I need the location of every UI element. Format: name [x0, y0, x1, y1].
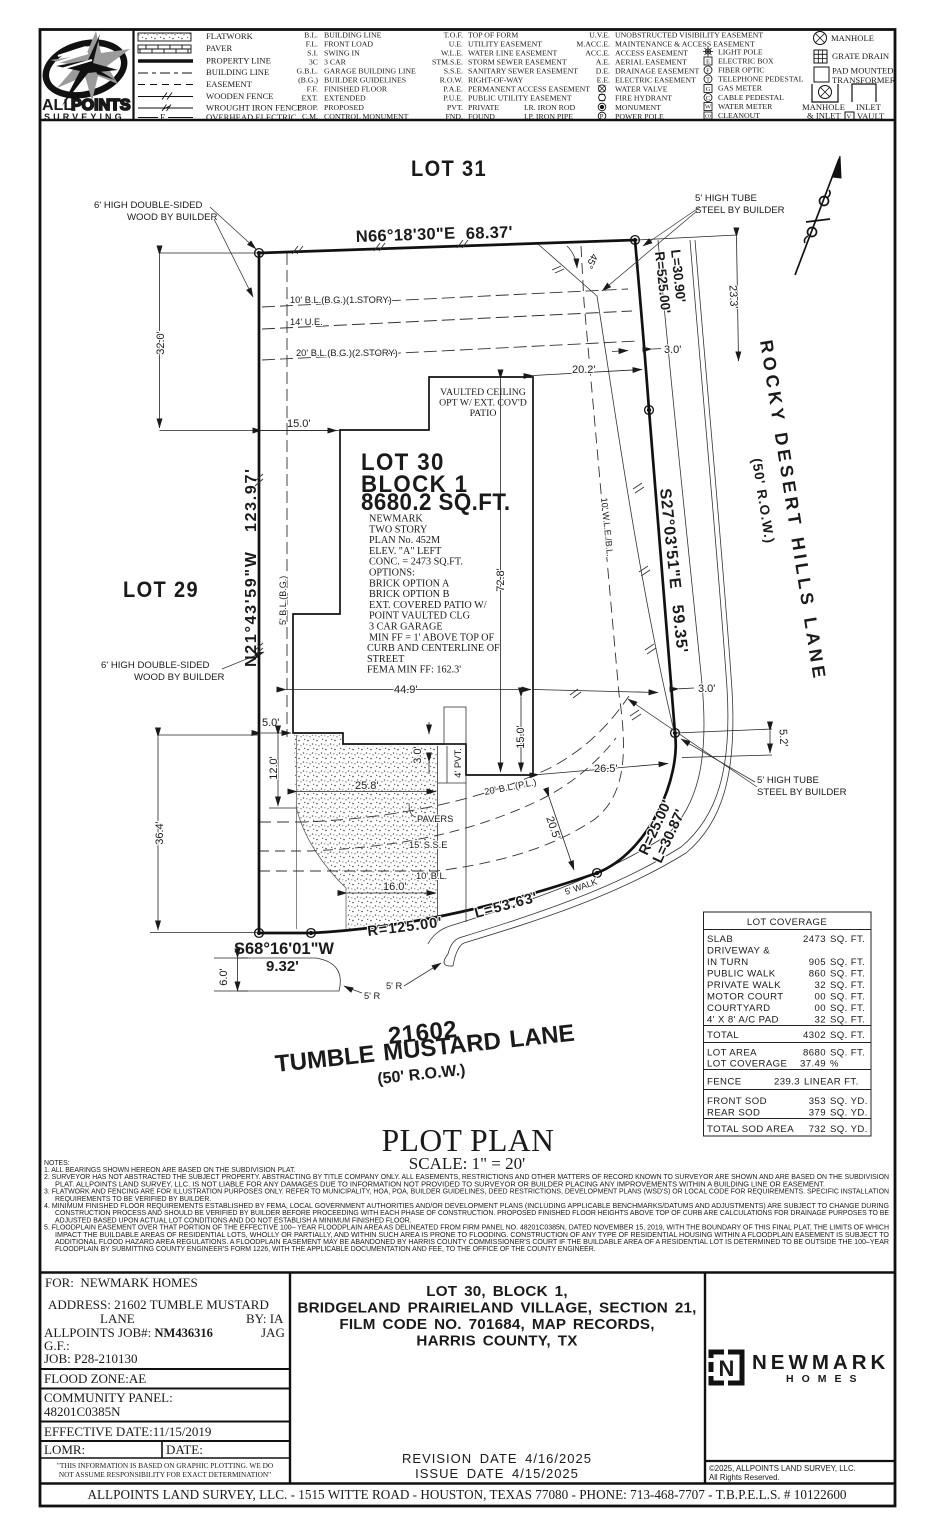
- svg-text:CONTROL MONUMENT: CONTROL MONUMENT: [324, 112, 409, 121]
- svg-text:WATER VALVE: WATER VALVE: [615, 85, 668, 94]
- svg-text:F.F.: F.F.: [307, 85, 318, 94]
- svg-text:PROPOSED: PROPOSED: [324, 103, 364, 112]
- svg-text:TRANSFORMER: TRANSFORMER: [832, 75, 896, 85]
- svg-text:FIRE HYDRANT: FIRE HYDRANT: [615, 94, 672, 103]
- svg-text:PATIO: PATIO: [470, 408, 497, 419]
- svg-text:STEEL BY BUILDER: STEEL BY BUILDER: [695, 205, 785, 216]
- svg-text:HARRIS COUNTY, TX: HARRIS COUNTY, TX: [416, 1333, 577, 1350]
- svg-text:T.O.F.: T.O.F.: [444, 31, 463, 40]
- svg-text:VAULTED CEILING: VAULTED CEILING: [440, 387, 526, 398]
- svg-text:ELECTRIC BOX: ELECTRIC BOX: [718, 57, 774, 66]
- svg-text:LOT 29: LOT 29: [123, 578, 199, 602]
- svg-text:POINT VAULTED CLG: POINT VAULTED CLG: [369, 611, 471, 622]
- svg-text:STEEL BY BUILDER: STEEL BY BUILDER: [757, 787, 847, 798]
- svg-text:3 CAR GARAGE: 3 CAR GARAGE: [369, 622, 443, 633]
- svg-text:72.8': 72.8': [495, 568, 507, 592]
- svg-text:LOT COVERAGE: LOT COVERAGE: [707, 1059, 787, 1070]
- svg-text:S.S.E.: S.S.E.: [444, 67, 463, 76]
- svg-text:20.5': 20.5': [543, 815, 562, 841]
- svg-text:R.O.W.: R.O.W.: [440, 76, 463, 85]
- svg-text:SWING IN: SWING IN: [324, 49, 360, 58]
- svg-text:G.B.L.: G.B.L.: [297, 67, 318, 76]
- svg-text:PERMANENT ACCESS EASEMENT: PERMANENT ACCESS EASEMENT: [468, 85, 590, 94]
- svg-text:BUILDING LINE: BUILDING LINE: [324, 31, 382, 40]
- svg-text:5' HIGH TUBE: 5' HIGH TUBE: [695, 193, 757, 204]
- svg-text:LIGHT POLE: LIGHT POLE: [718, 48, 763, 57]
- svg-text:D.E.: D.E.: [596, 67, 610, 76]
- svg-text:PROP.: PROP.: [297, 103, 318, 112]
- svg-text:EFFECTIVE DATE:11/15/2019: EFFECTIVE DATE:11/15/2019: [44, 1424, 211, 1439]
- svg-text:4' X 8' A/C PAD: 4' X 8' A/C PAD: [707, 1015, 779, 1026]
- svg-text:FLOOD ZONE:AE: FLOOD ZONE:AE: [44, 1371, 146, 1386]
- svg-text:6' HIGH DOUBLE-SIDED: 6' HIGH DOUBLE-SIDED: [94, 200, 203, 211]
- svg-text:A.E.: A.E.: [596, 58, 610, 67]
- svg-text:REAR SOD: REAR SOD: [707, 1108, 760, 1119]
- svg-text:PAVER: PAVER: [206, 43, 233, 53]
- svg-text:CABLE PEDESTAL: CABLE PEDESTAL: [718, 93, 784, 102]
- svg-text:SQ. FT.: SQ. FT.: [830, 957, 865, 968]
- svg-text:UTILITY EASEMENT: UTILITY EASEMENT: [468, 40, 542, 49]
- svg-text:L=53.63': L=53.63': [473, 890, 540, 922]
- svg-text:2. SURVEYOR HAS NOT ABSTRACTE: 2. SURVEYOR HAS NOT ABSTRACTED THE SUBJE…: [44, 1174, 889, 1181]
- svg-text:NEWMARK: NEWMARK: [369, 514, 423, 525]
- svg-text:20.2': 20.2': [572, 364, 596, 376]
- svg-text:45°: 45°: [583, 252, 599, 270]
- svg-text:STORM SEWER EASEMENT: STORM SEWER EASEMENT: [468, 58, 567, 67]
- svg-text:SQ. YD.: SQ. YD.: [830, 1096, 868, 1107]
- svg-text:EASEMENT: EASEMENT: [206, 79, 253, 89]
- svg-text:SQ. FT.: SQ. FT.: [830, 1030, 865, 1041]
- svg-text:EXT.: EXT.: [301, 94, 318, 103]
- svg-text:860: 860: [809, 969, 826, 980]
- svg-text:239.3: 239.3: [774, 1077, 800, 1088]
- svg-text:732: 732: [809, 1124, 826, 1135]
- svg-text:EXTENDED: EXTENDED: [324, 94, 366, 103]
- svg-text:JAG: JAG: [261, 1325, 285, 1340]
- svg-text:IMPACT THE BUILDABLE AREAS OF: IMPACT THE BUILDABLE AREAS OF RESIDENTIA…: [55, 1232, 890, 1239]
- svg-text:E.E.: E.E.: [597, 76, 610, 85]
- svg-text:FRONT LOAD: FRONT LOAD: [324, 40, 373, 49]
- svg-text:GARAGE BUILDING LINE: GARAGE BUILDING LINE: [324, 67, 416, 76]
- svg-text:BRICK OPTION B: BRICK OPTION B: [369, 589, 450, 600]
- svg-text:E: E: [160, 113, 166, 123]
- svg-text:HOMES: HOMES: [786, 1373, 865, 1385]
- svg-text:N21°43'59"W 123.97': N21°43'59"W 123.97': [243, 467, 260, 667]
- svg-text:ALLPOINTS LAND SURVEY, LLC. -: ALLPOINTS LAND SURVEY, LLC. - 1515 WITTE…: [87, 1487, 846, 1502]
- svg-text:PVT.: PVT.: [447, 103, 463, 112]
- svg-text:CONSTRUCTION PROCESS AND SHOUL: CONSTRUCTION PROCESS AND SHOULD BE VERIF…: [55, 1210, 889, 1217]
- svg-text:BUILDING LINE: BUILDING LINE: [206, 67, 269, 77]
- svg-text:8680.2 SQ.FT.: 8680.2 SQ.FT.: [361, 488, 511, 515]
- svg-text:GAS METER: GAS METER: [718, 84, 763, 93]
- svg-text:15.0': 15.0': [515, 725, 527, 749]
- svg-text:MANHOLE: MANHOLE: [831, 33, 874, 43]
- svg-text:P: P: [600, 113, 604, 121]
- svg-text:LANE: LANE: [100, 1311, 135, 1326]
- svg-text:All Rights Reserved.: All Rights Reserved.: [709, 1473, 780, 1482]
- svg-text:PRIVATE WALK: PRIVATE WALK: [707, 980, 781, 991]
- svg-text:COMMUNITY PANEL:: COMMUNITY PANEL:: [44, 1390, 173, 1405]
- svg-text:3. FLATWORK AND FENCING ARE F: 3. FLATWORK AND FENCING ARE FOR ILLUSTRA…: [44, 1189, 889, 1196]
- svg-text:FOUND: FOUND: [468, 112, 495, 121]
- svg-text:T: T: [706, 77, 710, 84]
- svg-text:14' U.E.: 14' U.E.: [290, 317, 323, 327]
- svg-text:10' B.L.: 10' B.L.: [416, 871, 447, 881]
- svg-text:5' R: 5' R: [386, 981, 403, 991]
- svg-text:WOODEN FENCE: WOODEN FENCE: [206, 91, 274, 101]
- svg-text:REVISION DATE 4/16/2025: REVISION DATE 4/16/2025: [402, 1451, 592, 1466]
- svg-text:I.P. IRON PIPE: I.P. IRON PIPE: [524, 112, 573, 121]
- svg-text:3.0': 3.0': [412, 746, 424, 763]
- svg-text:AERIAL EASEMENT: AERIAL EASEMENT: [615, 58, 687, 67]
- svg-text:5. FLOODPLAIN EASEMENT OVER T: 5. FLOODPLAIN EASEMENT OVER THAT PORTION…: [44, 1225, 889, 1232]
- svg-text:TOTAL: TOTAL: [707, 1030, 739, 1041]
- svg-text:SQ. FT.: SQ. FT.: [830, 1048, 865, 1059]
- svg-text:ELEV. "A" LEFT: ELEV. "A" LEFT: [369, 546, 442, 557]
- svg-text:353: 353: [809, 1096, 826, 1107]
- svg-text:BRICK OPTION A: BRICK OPTION A: [369, 578, 450, 589]
- svg-text:COURTYARD: COURTYARD: [707, 1003, 770, 1014]
- svg-text:10' W.L.E./B.L.: 10' W.L.E./B.L.: [599, 497, 615, 557]
- svg-text:37.49: 37.49: [800, 1059, 826, 1070]
- svg-text:SQ. YD.: SQ. YD.: [830, 1124, 868, 1135]
- svg-text:2473: 2473: [803, 934, 826, 945]
- svg-text:15' S.S.E: 15' S.S.E: [409, 840, 447, 850]
- svg-text:CLEANOUT: CLEANOUT: [718, 111, 760, 120]
- svg-text:NOT ASSUME RESPONSIBILITY FOR: NOT ASSUME RESPONSIBILITY FOR EXACT DETE…: [59, 1470, 271, 1479]
- svg-text:LOMR:: LOMR:: [44, 1442, 85, 1457]
- svg-text:E: E: [706, 58, 710, 65]
- svg-text:FRONT SOD: FRONT SOD: [707, 1096, 767, 1107]
- svg-text:FIBER OPTIC: FIBER OPTIC: [718, 66, 765, 75]
- svg-text:G: G: [706, 86, 711, 93]
- svg-text:PUBLIC WALK: PUBLIC WALK: [707, 969, 776, 980]
- svg-text:25.8': 25.8': [355, 780, 379, 792]
- svg-text:5' B.L.(B.G.): 5' B.L.(B.G.): [278, 576, 288, 625]
- svg-text:12.0': 12.0': [268, 756, 280, 780]
- svg-text:I.R. IRON ROD: I.R. IRON ROD: [524, 103, 575, 112]
- svg-text:TELEPHONE PEDESTAL: TELEPHONE PEDESTAL: [718, 75, 804, 84]
- svg-text:PROPERTY LINE: PROPERTY LINE: [206, 56, 271, 66]
- svg-text:N66°18'30"E: N66°18'30"E: [356, 225, 456, 246]
- svg-text:C: C: [706, 95, 711, 102]
- svg-text:32: 32: [815, 1015, 826, 1026]
- svg-text:ADDITIONAL FLOOD HAZARD AREA R: ADDITIONAL FLOOD HAZARD AREA REGULATIONS…: [55, 1239, 889, 1246]
- svg-text:V: V: [847, 114, 852, 121]
- svg-text:MONUMENT: MONUMENT: [615, 103, 661, 112]
- svg-text:5.0': 5.0': [262, 717, 279, 729]
- svg-text:WATER METER: WATER METER: [718, 102, 773, 111]
- svg-text:FND.: FND.: [445, 112, 463, 121]
- svg-text:TOTAL SOD AREA: TOTAL SOD AREA: [707, 1124, 794, 1135]
- svg-text:(50' R.O.W.): (50' R.O.W.): [749, 457, 777, 545]
- svg-text:DRAINAGE EASEMENT: DRAINAGE EASEMENT: [615, 67, 699, 76]
- svg-text:WOOD BY BUILDER: WOOD BY BUILDER: [134, 672, 225, 683]
- svg-text:P.U.E.: P.U.E.: [443, 94, 463, 103]
- svg-text:STM.S.E.: STM.S.E.: [432, 58, 463, 67]
- svg-text:20' B.L.(P.L.): 20' B.L.(P.L.): [483, 777, 537, 797]
- svg-text:20' B.L.(B.G.)(2 STORY): 20' B.L.(B.G.)(2 STORY): [296, 348, 398, 358]
- svg-text:PLAT. ALLPOINTS LAND SURVEY, L: PLAT. ALLPOINTS LAND SURVEY, LLC. IS NOT…: [55, 1181, 825, 1188]
- svg-text:SQ. FT.: SQ. FT.: [830, 980, 865, 991]
- svg-text:BRIDGELAND PRAIRIELAND VILLAGE: BRIDGELAND PRAIRIELAND VILLAGE, SECTION …: [297, 1300, 696, 1317]
- svg-text:"THIS INFORMATION IS BASED ON: "THIS INFORMATION IS BASED ON GRAPHIC PL…: [57, 1461, 273, 1470]
- svg-text:U.E.: U.E.: [449, 40, 463, 49]
- svg-text:FILM CODE NO. 701684, MAP RECO: FILM CODE NO. 701684, MAP RECORDS,: [339, 1316, 654, 1333]
- svg-text:TOP OF FORM: TOP OF FORM: [468, 31, 518, 40]
- svg-text:44.9': 44.9': [394, 684, 418, 696]
- svg-text:OPTIONS:: OPTIONS:: [369, 568, 415, 579]
- svg-text:5' R: 5' R: [364, 991, 381, 1001]
- svg-text:(B.G.): (B.G.): [298, 76, 318, 85]
- svg-text:4. MINIMUM FINISHED FLOOR REQ: 4. MINIMUM FINISHED FLOOR REQUIREMENTS E…: [44, 1203, 889, 1210]
- svg-text:©2025, ALLPOINTS LAND SURVE: ©2025, ALLPOINTS LAND SURVEY, LLC.: [709, 1464, 856, 1473]
- svg-text:DATE:: DATE:: [166, 1442, 203, 1457]
- svg-text:SQ. FT.: SQ. FT.: [830, 1015, 865, 1026]
- svg-text:8680: 8680: [803, 1048, 826, 1059]
- svg-text:10' B.L.(B.G.)(1 STORY): 10' B.L.(B.G.)(1 STORY): [290, 295, 392, 305]
- svg-text:SQ. FT.: SQ. FT.: [830, 992, 865, 1003]
- svg-text:SQ. FT.: SQ. FT.: [830, 934, 865, 945]
- svg-text:WOOD BY BUILDER: WOOD BY BUILDER: [127, 212, 218, 223]
- svg-text:IN TURN: IN TURN: [707, 957, 749, 968]
- svg-text:32.0': 32.0': [155, 331, 167, 355]
- svg-text:NEWMARK: NEWMARK: [752, 1351, 889, 1374]
- svg-text:FENCE: FENCE: [707, 1077, 742, 1088]
- svg-text:F.L.: F.L.: [306, 40, 318, 49]
- svg-text:FEMA MIN FF: 162.3': FEMA MIN FF: 162.3': [367, 665, 461, 676]
- svg-text:REQUIREMENTS TO BE VERIFIED BY: REQUIREMENTS TO BE VERIFIED BY BUILDER.: [55, 1196, 211, 1203]
- svg-text:FOR: NEWMARK HOMES: FOR: NEWMARK HOMES: [45, 1275, 198, 1290]
- svg-text:5.2': 5.2': [777, 729, 790, 747]
- svg-text:6' HIGH DOUBLE-SIDED: 6' HIGH DOUBLE-SIDED: [101, 660, 210, 671]
- svg-text:MIN FF = 1' ABOVE TOP OF: MIN FF = 1' ABOVE TOP OF: [369, 632, 494, 643]
- svg-text:PRIVATE: PRIVATE: [468, 103, 499, 112]
- svg-text:MOTOR COURT: MOTOR COURT: [707, 992, 784, 1003]
- svg-text:SCALE: 1" = 20': SCALE: 1" = 20': [409, 1154, 525, 1173]
- svg-text:PLAN No. 452M: PLAN No. 452M: [369, 535, 440, 546]
- svg-text:SQ. FT.: SQ. FT.: [830, 969, 865, 980]
- svg-text:CURB AND CENTERLINE OF: CURB AND CENTERLINE OF: [367, 643, 500, 654]
- svg-text:36.4': 36.4': [154, 821, 166, 845]
- svg-text:co: co: [705, 113, 712, 120]
- svg-text:ISSUE DATE 4/15/2025: ISSUE DATE 4/15/2025: [415, 1466, 579, 1481]
- svg-text:LOT COVERAGE: LOT COVERAGE: [747, 917, 827, 928]
- svg-text:PAVERS: PAVERS: [417, 814, 453, 824]
- svg-text:PUBLIC UTILITY EASEMENT: PUBLIC UTILITY EASEMENT: [468, 94, 572, 103]
- svg-text:RIGHT-OF-WAY: RIGHT-OF-WAY: [468, 76, 524, 85]
- svg-text:3.0': 3.0': [698, 683, 715, 695]
- svg-text:4' PVT.: 4' PVT.: [453, 748, 464, 778]
- svg-text:C.M.: C.M.: [302, 112, 318, 121]
- svg-text:16.0': 16.0': [383, 881, 407, 893]
- svg-text:N: N: [719, 1356, 735, 1381]
- svg-text:JOB: P28-210130: JOB: P28-210130: [44, 1351, 138, 1366]
- svg-text:3 CAR: 3 CAR: [324, 58, 347, 67]
- svg-text:FINISHED FLOOR: FINISHED FLOOR: [324, 85, 388, 94]
- svg-text:32: 32: [815, 980, 826, 991]
- svg-text:& INLET: & INLET: [807, 111, 841, 121]
- svg-text:CONC. = 2473 SQ.FT.: CONC. = 2473 SQ.FT.: [369, 557, 463, 568]
- svg-text:15.0': 15.0': [287, 418, 311, 430]
- svg-text:SQ. YD.: SQ. YD.: [830, 1108, 868, 1119]
- svg-text:U.V.E.: U.V.E.: [589, 31, 610, 40]
- svg-text:FLOODPLAIN BY SUBMITTING COUNT: FLOODPLAIN BY SUBMITTING COUNTY ENGINEER…: [55, 1246, 596, 1253]
- svg-text:SANITARY SEWER EASEMENT: SANITARY SEWER EASEMENT: [468, 67, 578, 76]
- svg-text:DRIVEWAY &: DRIVEWAY &: [707, 946, 770, 957]
- svg-text:5' HIGH TUBE: 5' HIGH TUBE: [757, 775, 819, 786]
- svg-text:00: 00: [815, 1003, 826, 1014]
- svg-text:FLATWORK: FLATWORK: [206, 31, 254, 41]
- svg-text:PAD MOUNTED: PAD MOUNTED: [832, 66, 894, 76]
- svg-text:BY: IA: BY: IA: [246, 1311, 284, 1326]
- svg-text:3C: 3C: [309, 58, 318, 67]
- svg-text:NOTES:: NOTES:: [44, 1160, 70, 1167]
- svg-text:26.5': 26.5': [594, 763, 618, 775]
- svg-text:VAULT: VAULT: [857, 111, 885, 121]
- svg-text:PLOT PLAN: PLOT PLAN: [382, 1123, 555, 1158]
- svg-text:OVERHEAD ELECTRIC: OVERHEAD ELECTRIC: [206, 112, 297, 122]
- svg-text:STREET: STREET: [367, 654, 405, 665]
- svg-text:LOT 31: LOT 31: [411, 157, 487, 181]
- svg-text:1. ALL BEARINGS SHOWN HEREON: 1. ALL BEARINGS SHOWN HEREON ARE BASED O…: [44, 1167, 296, 1174]
- svg-text:SQ. FT.: SQ. FT.: [830, 1003, 865, 1014]
- svg-text:W: W: [705, 103, 712, 110]
- svg-text:ACCESS EASEMENT: ACCESS EASEMENT: [615, 49, 688, 58]
- svg-text:B.L.: B.L.: [304, 31, 318, 40]
- svg-text:68.37': 68.37': [466, 223, 514, 243]
- svg-text:POWER POLE: POWER POLE: [615, 112, 664, 121]
- svg-text:9.32': 9.32': [266, 958, 299, 975]
- svg-text:LOT 30, BLOCK 1,: LOT 30, BLOCK 1,: [426, 1283, 568, 1300]
- svg-text:%: %: [830, 1059, 839, 1070]
- svg-text:ADDRESS: 21602 TUMBLE MUSTARD: ADDRESS: 21602 TUMBLE MUSTARD: [48, 1297, 269, 1312]
- svg-text:UNOBSTRUCTED VISIBILITY EASEME: UNOBSTRUCTED VISIBILITY EASEMENT: [615, 31, 763, 40]
- svg-text:EXT. COVERED PATIO W/: EXT. COVERED PATIO W/: [369, 600, 487, 611]
- svg-text:W.L.E.: W.L.E.: [441, 49, 463, 58]
- svg-text:S68°16'01"W: S68°16'01"W: [234, 940, 334, 958]
- svg-text:GRATE DRAIN: GRATE DRAIN: [832, 51, 890, 61]
- svg-text:WATER LINE EASEMENT: WATER LINE EASEMENT: [468, 49, 557, 58]
- svg-text:F: F: [706, 68, 710, 75]
- svg-text:48201C0385N: 48201C0385N: [44, 1404, 121, 1419]
- svg-text:LINEAR FT.: LINEAR FT.: [804, 1077, 859, 1088]
- svg-text:905: 905: [809, 957, 826, 968]
- svg-text:ACC.E.: ACC.E.: [585, 49, 610, 58]
- svg-text:379: 379: [809, 1108, 826, 1119]
- svg-text:4302: 4302: [803, 1030, 826, 1041]
- svg-text:SURVEYING: SURVEYING: [44, 112, 125, 122]
- svg-text:23.3': 23.3': [726, 285, 739, 309]
- svg-text:TWO STORY: TWO STORY: [369, 524, 428, 535]
- svg-text:ADJUSTED BASED UPON ACTUAL LOT: ADJUSTED BASED UPON ACTUAL LOT CONDITION…: [55, 1217, 412, 1224]
- svg-text:3.0': 3.0': [664, 344, 681, 356]
- svg-text:P.A.E.: P.A.E.: [443, 85, 463, 94]
- svg-text:ELECTRIC EASEMENT: ELECTRIC EASEMENT: [615, 76, 696, 85]
- svg-text:OPT W/ EXT. COV'D: OPT W/ EXT. COV'D: [439, 398, 527, 409]
- svg-text:SLAB: SLAB: [707, 934, 733, 945]
- svg-text:BUILDER GUIDELINES: BUILDER GUIDELINES: [324, 76, 406, 85]
- svg-text:M.ACC.E.: M.ACC.E.: [576, 40, 610, 49]
- svg-text:00: 00: [815, 992, 826, 1003]
- svg-text:LOT AREA: LOT AREA: [707, 1048, 757, 1059]
- svg-text:S.I.: S.I.: [307, 49, 318, 58]
- svg-text:6.0': 6.0': [218, 968, 230, 985]
